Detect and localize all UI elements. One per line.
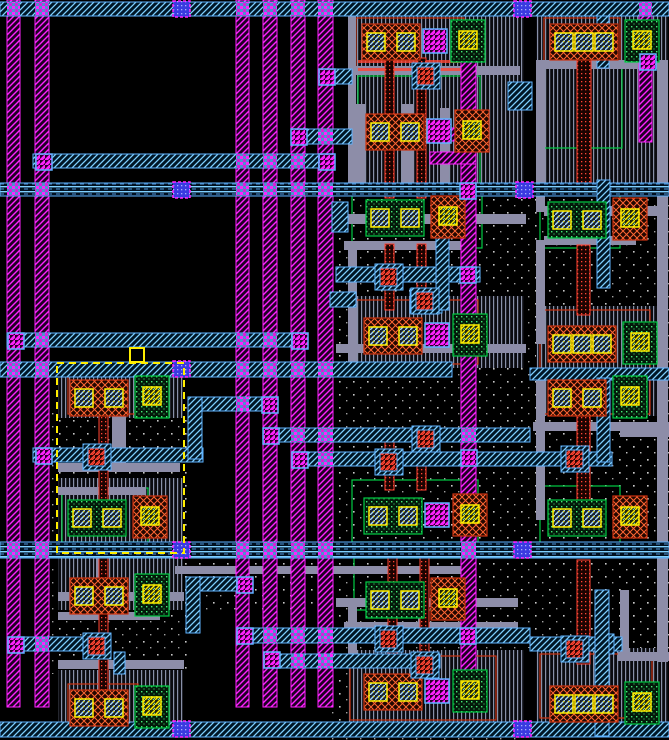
layout-svg[interactable]	[0, 0, 669, 740]
metal3-wire[interactable]	[7, 333, 308, 347]
poly-contact[interactable]	[380, 268, 397, 286]
metal3-wire[interactable]	[33, 154, 331, 168]
poly-strap[interactable]	[577, 245, 590, 315]
via-checker	[263, 542, 277, 558]
metal2-rail[interactable]	[7, 0, 20, 707]
metal2-rail[interactable]	[35, 0, 49, 707]
via-checker	[291, 542, 305, 558]
metal3-bus[interactable]	[0, 183, 669, 196]
metal3-wire[interactable]	[508, 82, 532, 110]
via2-metal2[interactable]	[237, 628, 253, 644]
contact-via[interactable]	[555, 695, 573, 713]
metal1-wire[interactable]	[620, 428, 669, 437]
via-checker	[236, 542, 249, 558]
via-metal3[interactable]	[516, 182, 533, 198]
via2-metal2[interactable]	[292, 452, 308, 468]
via-metal3[interactable]	[514, 542, 531, 558]
contact-via[interactable]	[595, 33, 613, 51]
via-checker	[7, 362, 20, 377]
contact-via[interactable]	[633, 693, 651, 711]
via-checker	[318, 362, 333, 377]
via-checker	[291, 428, 305, 442]
contact-via[interactable]	[633, 31, 651, 49]
contact-via[interactable]	[621, 209, 639, 227]
via2-metal2[interactable]	[425, 323, 449, 347]
via-checker	[291, 183, 305, 196]
via-checker	[35, 362, 49, 377]
contact-via[interactable]	[583, 389, 601, 407]
metal3-wire[interactable]	[33, 448, 203, 462]
metal1-wire[interactable]	[356, 104, 365, 188]
contact-via[interactable]	[553, 335, 571, 353]
metal1-wire[interactable]	[657, 62, 668, 662]
metal3-wire[interactable]	[332, 202, 348, 232]
metal3-wire[interactable]	[0, 362, 452, 377]
via-metal3[interactable]	[173, 721, 190, 737]
contact-via[interactable]	[439, 589, 457, 607]
contact-via[interactable]	[439, 207, 457, 225]
metal1-wire[interactable]	[536, 378, 545, 520]
layout-canvas[interactable]	[0, 0, 669, 740]
poly-contact[interactable]	[380, 630, 397, 648]
via2-metal2[interactable]	[36, 448, 52, 464]
contact-via[interactable]	[595, 695, 613, 713]
via2-metal2[interactable]	[36, 154, 52, 170]
poly-contact[interactable]	[566, 450, 583, 468]
contact-via[interactable]	[555, 33, 573, 51]
metal3-strap-vertical[interactable]	[186, 577, 200, 633]
metal2-rail[interactable]	[263, 0, 277, 707]
via-metal3[interactable]	[514, 1, 531, 17]
poly-contact[interactable]	[380, 453, 397, 471]
via-checker	[291, 628, 305, 643]
via-checker	[7, 2, 20, 16]
metal1-wire[interactable]	[536, 240, 545, 344]
via-checker	[35, 333, 49, 347]
via-checker	[263, 2, 277, 16]
contact-via[interactable]	[621, 507, 639, 525]
contact-via[interactable]	[461, 325, 479, 343]
contact-via[interactable]	[463, 121, 481, 139]
metal3-wire[interactable]	[330, 292, 356, 307]
via2-metal2[interactable]	[264, 652, 280, 668]
contact-via[interactable]	[461, 681, 479, 699]
via2-metal2[interactable]	[425, 679, 449, 703]
poly-contact[interactable]	[417, 67, 434, 85]
metal1-wire[interactable]	[348, 12, 356, 188]
via-checker	[318, 129, 333, 144]
metal2-jog[interactable]	[430, 152, 476, 164]
metal2-rail[interactable]	[291, 0, 305, 707]
via-checker	[461, 542, 476, 558]
contact-via[interactable]	[401, 591, 419, 609]
contact-via[interactable]	[459, 31, 477, 49]
via-checker	[236, 2, 249, 16]
via2-metal2[interactable]	[319, 154, 335, 170]
via2-metal2[interactable]	[425, 503, 449, 527]
contact-via[interactable]	[575, 695, 593, 713]
via-metal3[interactable]	[514, 721, 531, 737]
contact-via[interactable]	[371, 209, 389, 227]
contact-via[interactable]	[399, 683, 417, 701]
via-checker	[7, 542, 20, 558]
via-checker	[263, 183, 277, 196]
contact-via[interactable]	[583, 211, 601, 229]
via-checker	[318, 654, 333, 668]
poly-contact[interactable]	[416, 656, 433, 674]
contact-via[interactable]	[461, 505, 479, 523]
via-checker	[236, 362, 249, 377]
metal1-wire[interactable]	[618, 652, 669, 661]
via-checker	[639, 2, 652, 16]
via2-metal2[interactable]	[640, 54, 656, 70]
via-checker	[236, 333, 249, 347]
contact-via[interactable]	[103, 509, 121, 527]
via-checker	[291, 654, 305, 668]
contact-via[interactable]	[75, 389, 93, 407]
via-checker	[263, 362, 277, 377]
via2-metal2[interactable]	[423, 29, 447, 53]
via-checker	[291, 154, 305, 168]
poly-strap[interactable]	[577, 42, 591, 192]
contact-via[interactable]	[583, 509, 601, 527]
contact-via[interactable]	[105, 587, 123, 605]
contact-via[interactable]	[575, 33, 593, 51]
via2-metal2[interactable]	[427, 119, 451, 143]
selection-handle[interactable]	[130, 348, 144, 362]
via-checker	[263, 333, 277, 347]
via-checker	[236, 154, 249, 168]
metal3-strap-vertical[interactable]	[114, 652, 125, 674]
via-checker	[236, 183, 249, 196]
contact-via[interactable]	[593, 335, 611, 353]
poly-line	[358, 68, 462, 71]
contact-via[interactable]	[397, 33, 415, 51]
via-metal3[interactable]	[173, 542, 190, 558]
via-checker	[318, 452, 333, 466]
contact-via[interactable]	[105, 389, 123, 407]
via-checker	[35, 542, 49, 558]
via2-metal2[interactable]	[8, 637, 24, 653]
via-metal3[interactable]	[173, 1, 190, 17]
contact-via[interactable]	[143, 387, 161, 405]
contact-via[interactable]	[75, 587, 93, 605]
via2-metal2[interactable]	[8, 333, 24, 349]
contact-via[interactable]	[143, 585, 161, 603]
contact-via[interactable]	[631, 333, 649, 351]
via-checker	[318, 2, 333, 16]
metal3-wire[interactable]	[0, 2, 669, 16]
via-checker	[35, 637, 49, 651]
via-checker	[318, 542, 333, 558]
via-checker	[318, 628, 333, 643]
contact-via[interactable]	[553, 211, 571, 229]
via-checker	[263, 154, 277, 168]
via-checker	[318, 183, 333, 196]
via2-metal2[interactable]	[460, 267, 476, 283]
contact-via[interactable]	[401, 123, 419, 141]
via-checker	[461, 428, 476, 442]
contact-via[interactable]	[553, 389, 571, 407]
contact-via[interactable]	[105, 699, 123, 717]
contact-via[interactable]	[75, 699, 93, 717]
contact-via[interactable]	[573, 335, 591, 353]
via-checker	[35, 183, 49, 196]
metal2-rail[interactable]	[318, 0, 333, 707]
contact-via[interactable]	[143, 697, 161, 715]
via-checker	[291, 362, 305, 377]
via2-metal2[interactable]	[460, 628, 476, 644]
via-checker	[236, 397, 249, 411]
contact-via[interactable]	[401, 209, 419, 227]
via2-metal2[interactable]	[263, 428, 279, 444]
metal3-bus[interactable]	[0, 542, 669, 558]
poly-contact[interactable]	[88, 637, 105, 655]
poly-contact[interactable]	[417, 430, 434, 448]
metal2-rail[interactable]	[236, 0, 249, 707]
via-checker	[318, 428, 333, 442]
via2-metal2[interactable]	[262, 397, 278, 413]
via2-metal2[interactable]	[291, 129, 307, 145]
poly-contact[interactable]	[416, 292, 433, 310]
via-metal3[interactable]	[173, 182, 190, 198]
poly-contact[interactable]	[566, 640, 583, 658]
contact-via[interactable]	[371, 591, 389, 609]
via-checker	[291, 2, 305, 16]
contact-via[interactable]	[399, 507, 417, 525]
contact-via[interactable]	[399, 327, 417, 345]
contact-via[interactable]	[369, 683, 387, 701]
contact-via[interactable]	[367, 33, 385, 51]
contact-via[interactable]	[73, 509, 91, 527]
contact-via[interactable]	[553, 509, 571, 527]
metal3-strap-vertical[interactable]	[188, 397, 202, 459]
metal3-wire[interactable]	[336, 267, 480, 282]
contact-via[interactable]	[141, 507, 159, 525]
via2-metal2[interactable]	[292, 333, 308, 349]
via2-metal2[interactable]	[461, 450, 477, 466]
via2-metal2[interactable]	[319, 69, 335, 85]
contact-via[interactable]	[369, 507, 387, 525]
contact-via[interactable]	[621, 387, 639, 405]
via-checker	[263, 628, 277, 643]
via-checker	[7, 183, 20, 196]
contact-via[interactable]	[369, 327, 387, 345]
via-checker	[35, 2, 49, 16]
contact-via[interactable]	[371, 123, 389, 141]
poly-contact[interactable]	[88, 448, 105, 466]
via2-metal2[interactable]	[237, 577, 253, 593]
via2-metal2[interactable]	[460, 183, 476, 199]
